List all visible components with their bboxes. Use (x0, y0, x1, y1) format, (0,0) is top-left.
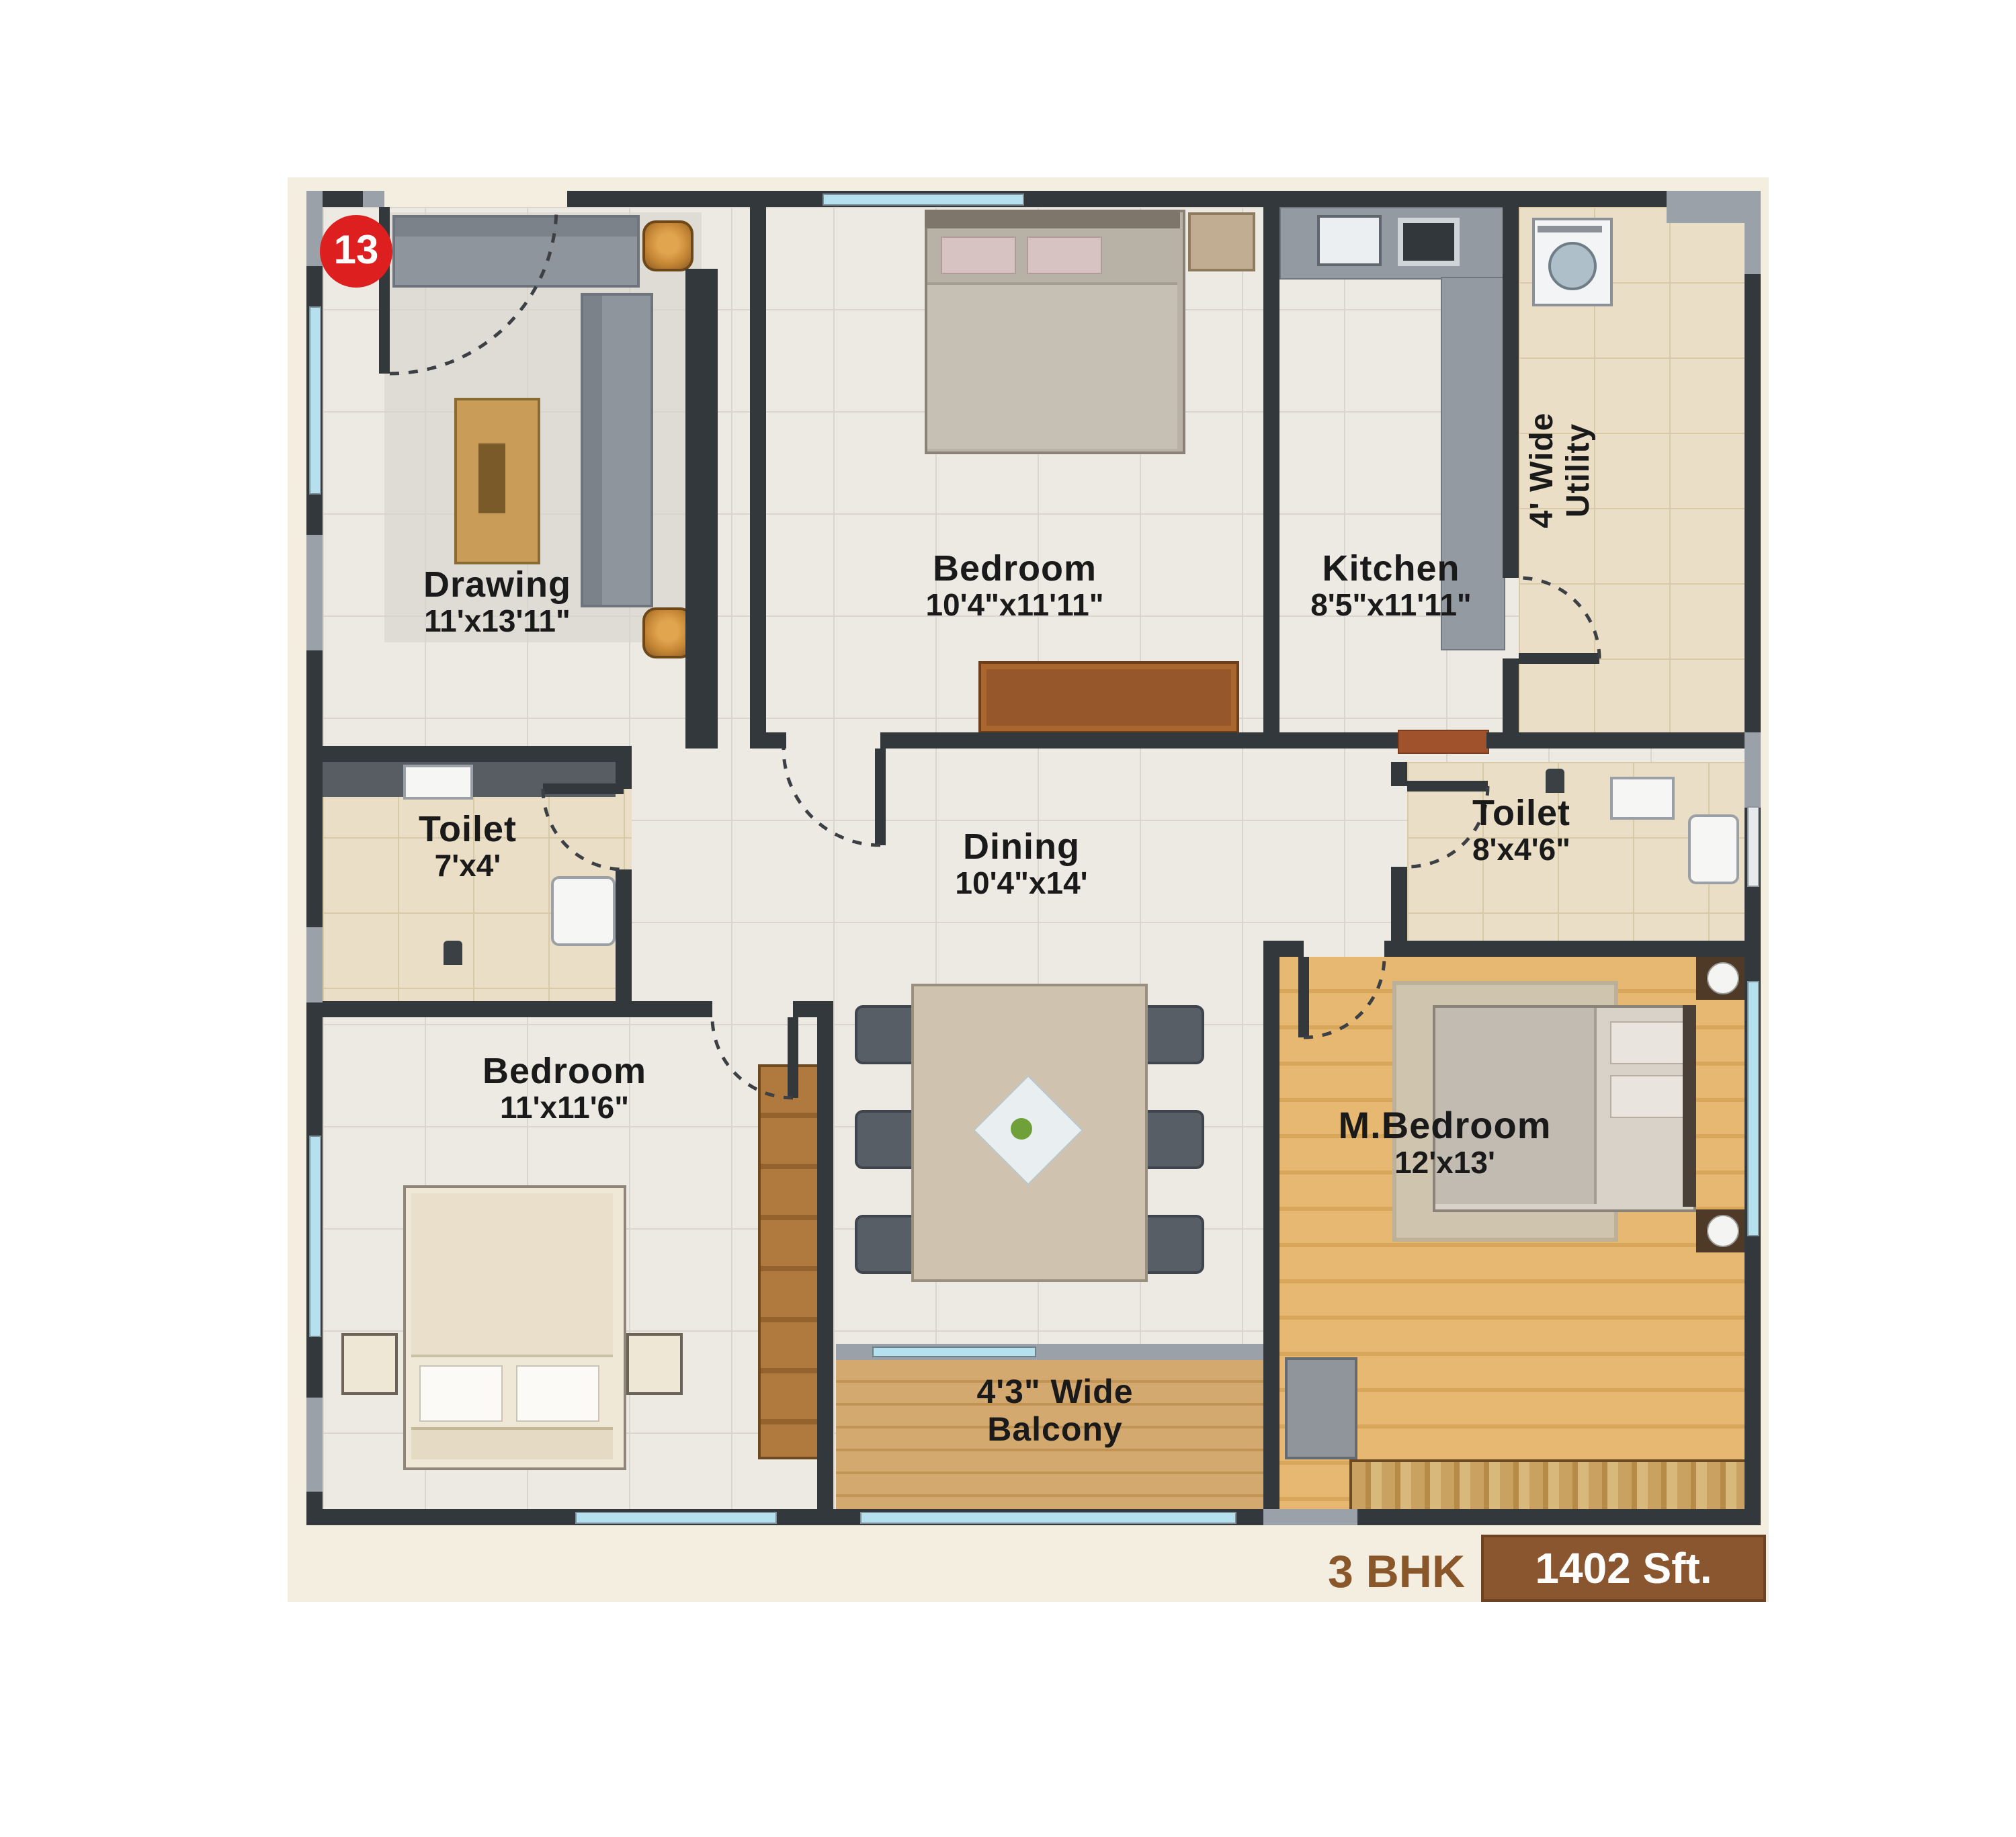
room-dims: 10'4"x11'11" (860, 589, 1169, 624)
bhk-label: 3 BHK (1277, 1543, 1465, 1602)
window (309, 306, 321, 495)
window (860, 1512, 1236, 1524)
room-dims: 10'4"x14' (887, 867, 1156, 902)
wall-accent (1745, 191, 1761, 274)
pillow (941, 237, 1016, 274)
dining-chair (1140, 1110, 1204, 1169)
toilet-fixture-icon (1688, 814, 1739, 884)
room-name: M.Bedroom (1297, 1105, 1593, 1147)
pillow (1027, 237, 1102, 274)
wall (1503, 658, 1519, 749)
bed-blanket (927, 282, 1177, 449)
kitchen-door-sill (1398, 730, 1489, 754)
dining-chair (1140, 1215, 1204, 1274)
room-label-kitchen: Kitchen 8'5"x11'11" (1270, 548, 1512, 624)
nightstand (341, 1333, 398, 1395)
room-label-drawing: Drawing 11'x13'11" (343, 564, 652, 640)
wall (1263, 191, 1279, 749)
door-leaf (1407, 781, 1488, 792)
washing-machine-panel (1538, 226, 1602, 232)
wall (1384, 941, 1745, 957)
wall (1486, 732, 1761, 749)
room-dims: 8'5"x11'11" (1270, 589, 1512, 624)
dining-chair (855, 1005, 919, 1064)
room-name: Kitchen (1270, 548, 1512, 589)
room-dims: 11'x11'6" (403, 1091, 726, 1126)
room-dims: 11'x13'11" (343, 605, 652, 640)
room-name: 4'3" Wide (921, 1373, 1189, 1411)
wall-accent (306, 927, 323, 1002)
wall-accent (1745, 732, 1761, 808)
dining-chair (855, 1215, 919, 1274)
bed-headboard (1683, 1005, 1696, 1207)
window (575, 1512, 777, 1524)
side-stool (642, 220, 694, 271)
entrance-opening (384, 191, 567, 207)
window (309, 1136, 321, 1337)
window (1747, 981, 1759, 1236)
sofa (392, 215, 640, 288)
wall (1391, 762, 1407, 786)
pillow (1610, 1021, 1685, 1064)
door-leaf (1519, 653, 1599, 664)
pillow (516, 1365, 599, 1422)
wall (1503, 191, 1519, 578)
washing-machine-door (1548, 242, 1597, 290)
wash-basin-icon (403, 765, 473, 800)
wall (616, 869, 632, 1001)
room-name: Balcony (921, 1411, 1189, 1449)
window (823, 194, 1024, 206)
room-label-toilet-right: Toilet 8'x4'6" (1414, 793, 1629, 868)
shower-icon (444, 941, 462, 965)
room-dims: 7'x4' (360, 849, 575, 884)
wall (1263, 941, 1279, 1509)
room-label-toilet-left: Toilet 7'x4' (360, 809, 575, 884)
wall (306, 746, 632, 762)
room-name: Toilet (1414, 793, 1629, 833)
wall (1279, 941, 1304, 957)
nightstand (626, 1333, 683, 1395)
unit-number: 13 (334, 228, 379, 274)
coffee-table-slat (478, 443, 505, 513)
dresser (978, 661, 1239, 734)
wall (750, 191, 766, 749)
room-label-bedroom-top: Bedroom 10'4"x11'11" (860, 548, 1169, 624)
room-label-bedroom-left: Bedroom 11'x11'6" (403, 1051, 726, 1126)
door-leaf (543, 783, 624, 794)
unit-number-badge: 13 (320, 215, 392, 288)
room-label-dining: Dining 10'4"x14' (887, 826, 1156, 902)
wall (685, 269, 718, 749)
floor-plan-canvas: 13 Drawing 11'x13'11" Bedroom 10'4"x11'1… (0, 0, 2016, 1837)
room-dims: 8'x4'6" (1414, 833, 1629, 868)
room-name: Dining (887, 826, 1156, 867)
room-label-balcony: 4'3" Wide Balcony (921, 1373, 1189, 1449)
pillow (1610, 1075, 1685, 1118)
area-label: 1402 Sft. (1535, 1543, 1712, 1593)
door-leaf (875, 749, 886, 845)
dining-chair (1140, 1005, 1204, 1064)
vent-window (1747, 806, 1759, 887)
wall (880, 732, 1398, 749)
centerpiece-plant (1011, 1118, 1032, 1140)
dresser (1285, 1357, 1357, 1459)
shower-icon (1546, 769, 1564, 793)
wall-accent (306, 1398, 323, 1492)
lamp-icon (1707, 1215, 1739, 1247)
room-label-master-bedroom: M.Bedroom 12'x13' (1297, 1105, 1593, 1181)
bed-headboard (411, 1427, 613, 1459)
wall (817, 1017, 833, 1509)
lamp-icon (1707, 962, 1739, 994)
room-name: 4' Wide (1525, 370, 1562, 571)
kitchen-counter (1279, 207, 1505, 280)
sliding-door (874, 1348, 1035, 1356)
room-name: Drawing (343, 564, 652, 605)
bed-blanket (411, 1193, 613, 1357)
room-name: Utility (1562, 370, 1598, 571)
corner-shelf (1188, 212, 1255, 271)
wardrobe (1349, 1459, 1750, 1514)
wall-accent (306, 535, 323, 650)
door-leaf (1298, 957, 1309, 1037)
door-leaf (788, 1017, 798, 1098)
wardrobe (758, 1064, 820, 1459)
sink-icon (1317, 215, 1382, 266)
room-dims: 12'x13' (1297, 1147, 1593, 1182)
wall (1391, 867, 1407, 957)
sofa (581, 293, 653, 607)
hob-icon (1398, 218, 1460, 266)
room-name: Bedroom (403, 1051, 726, 1091)
bed-headboard (925, 210, 1180, 228)
wall-accent (1263, 1509, 1357, 1525)
toilet-fixture-icon (551, 876, 616, 946)
wall (306, 1001, 712, 1017)
area-label-box: 1402 Sft. (1481, 1535, 1766, 1602)
pillow (419, 1365, 503, 1422)
room-name: Toilet (360, 809, 575, 849)
room-name: Bedroom (860, 548, 1169, 589)
wall (793, 1001, 833, 1017)
room-label-utility: 4' Wide Utility (1525, 370, 1740, 571)
dining-chair (855, 1110, 919, 1169)
